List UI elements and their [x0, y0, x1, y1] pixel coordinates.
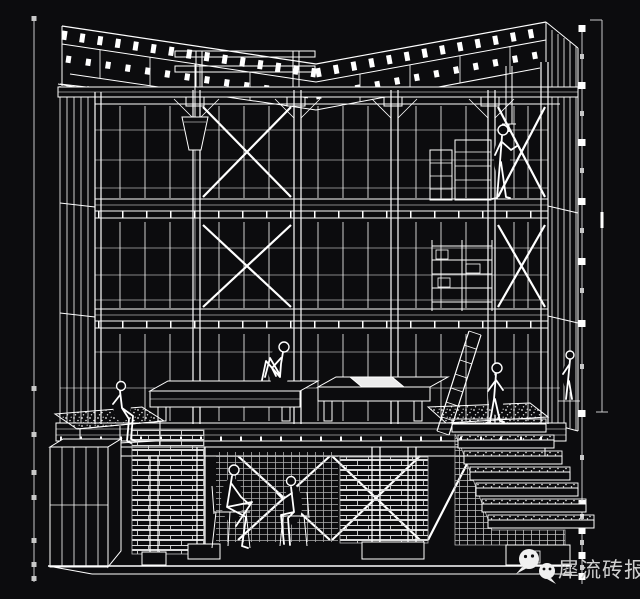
sectional-axonometric-drawing: 犀流砖报 — [0, 0, 640, 599]
storage-cabinet — [50, 439, 121, 567]
watermark-text: 犀流砖报 — [558, 558, 640, 582]
screenshot-canvas: 犀流砖报 — [0, 0, 640, 599]
